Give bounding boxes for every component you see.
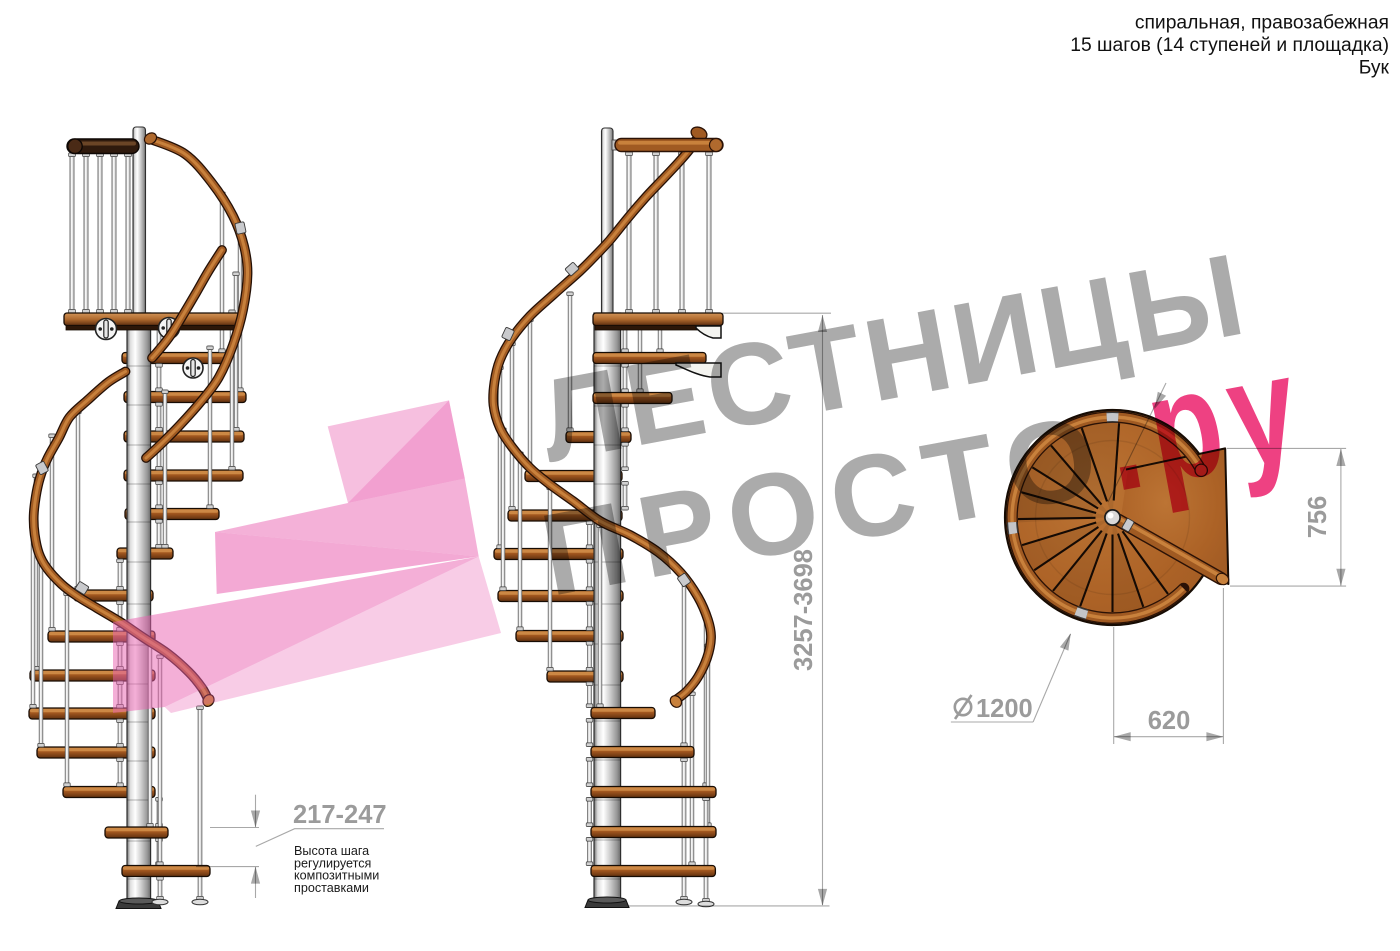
svg-text:217-247: 217-247	[293, 801, 387, 829]
svg-text:15 шагов (14 ступеней и площад: 15 шагов (14 ступеней и площадка)	[1070, 35, 1389, 56]
svg-text:Бук: Бук	[1359, 58, 1390, 79]
svg-text:спиральная, правозабежная: спиральная, правозабежная	[1135, 13, 1389, 34]
svg-text:проставками: проставками	[294, 881, 369, 895]
svg-text:1200: 1200	[976, 695, 1033, 723]
svg-text:756: 756	[1304, 496, 1332, 539]
svg-text:620: 620	[1148, 707, 1191, 735]
